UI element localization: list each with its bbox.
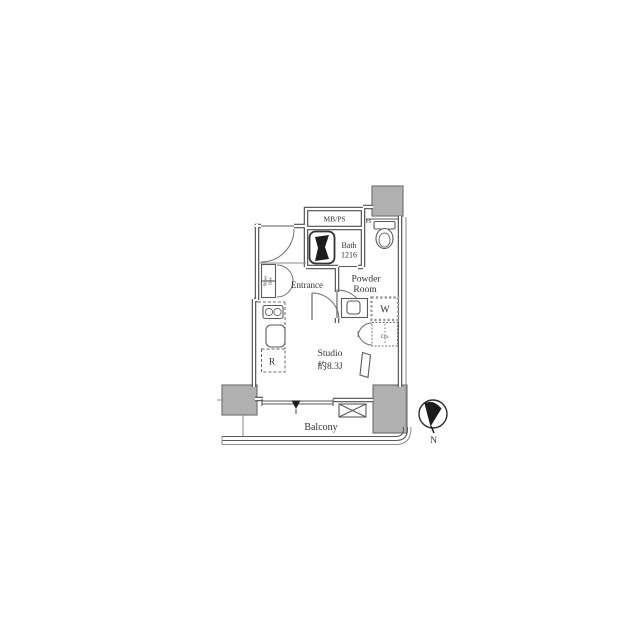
stove <box>263 306 283 319</box>
kitchen-sink <box>266 325 285 347</box>
closet-door-arc-top <box>358 323 372 337</box>
toilet <box>374 222 395 249</box>
window-marker-triangle <box>292 401 301 410</box>
label-entrance: Entrance <box>291 280 323 290</box>
compass-needle <box>425 402 442 427</box>
compass-tail <box>431 426 434 433</box>
compass: N <box>419 400 447 446</box>
balcony-window <box>262 399 333 414</box>
service-space-box <box>339 404 366 417</box>
label-powder-1: Powder <box>351 275 381 285</box>
label-closet: Clo. <box>381 335 389 340</box>
label-studio-size: 約8.3J <box>317 360 342 372</box>
washbasin <box>342 299 368 318</box>
label-bath: Bath <box>341 241 356 250</box>
floor-plan-page: N MB/PS PS Bath 1216 Entrance Powder Roo… <box>0 0 640 640</box>
label-powder-2: Room <box>353 285 377 295</box>
label-mbps: MB/PS <box>323 215 345 224</box>
north-label: N <box>430 436 437 446</box>
label-studio: Studio <box>318 349 343 359</box>
closet-door-arc-bottom <box>358 331 372 345</box>
label-refrigerator: R <box>269 358 276 368</box>
bathtub <box>310 232 335 264</box>
shoes-door-arc-top <box>277 265 293 281</box>
label-shoes-2: Box <box>268 277 273 285</box>
floor-plan-drawing: N MB/PS PS Bath 1216 Entrance Powder Roo… <box>0 0 640 640</box>
label-bath-size: 1216 <box>341 251 357 260</box>
label-washer: W <box>380 305 390 316</box>
label-balcony: Balcony <box>304 422 337 433</box>
studio-door-arc <box>312 293 339 320</box>
pillar-bottom-left <box>222 385 257 415</box>
label-ps: PS <box>365 219 371 225</box>
pillar-top-right <box>372 186 403 216</box>
pillar-bottom-right <box>373 385 407 433</box>
wall-shelf <box>360 353 371 378</box>
front-door-arc <box>261 229 294 262</box>
